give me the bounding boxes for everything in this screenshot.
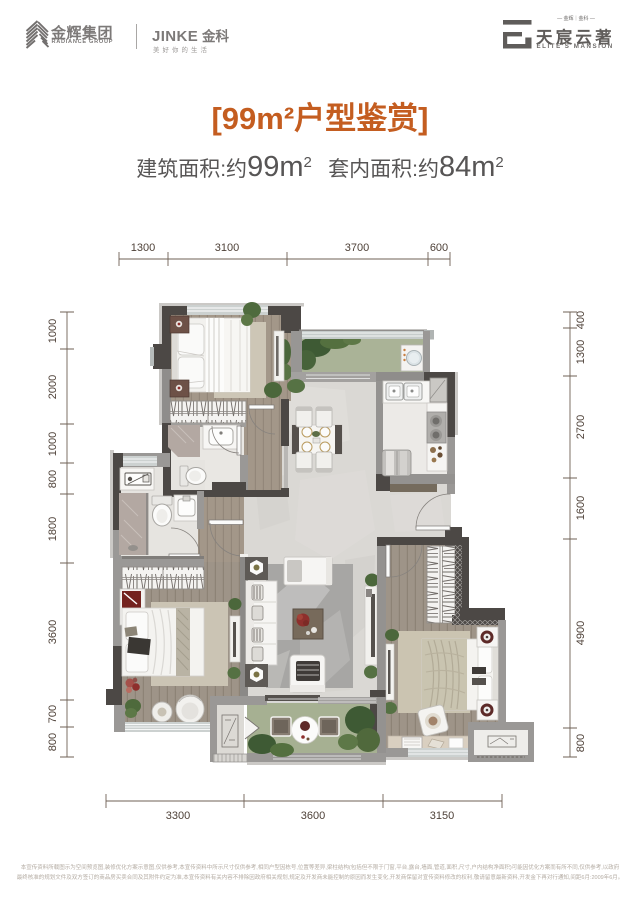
svg-text:1300: 1300 [131,242,155,254]
svg-text:600: 600 [430,242,448,254]
svg-text:400: 400 [575,311,587,329]
svg-text:2000: 2000 [47,375,59,399]
svg-text:800: 800 [575,734,587,752]
svg-text:2700: 2700 [575,415,587,439]
svg-text:3100: 3100 [215,242,239,254]
svg-text:800: 800 [47,733,59,751]
svg-text:1800: 1800 [47,517,59,541]
svg-text:1300: 1300 [575,340,587,364]
svg-text:4900: 4900 [575,621,587,645]
svg-text:3600: 3600 [301,810,325,822]
svg-text:3700: 3700 [345,242,369,254]
svg-text:3300: 3300 [166,810,190,822]
svg-text:1000: 1000 [47,319,59,343]
svg-text:700: 700 [47,705,59,723]
svg-text:800: 800 [47,470,59,488]
svg-text:1000: 1000 [47,432,59,456]
svg-text:1600: 1600 [575,496,587,520]
svg-text:3150: 3150 [430,810,454,822]
svg-text:3600: 3600 [47,620,59,644]
